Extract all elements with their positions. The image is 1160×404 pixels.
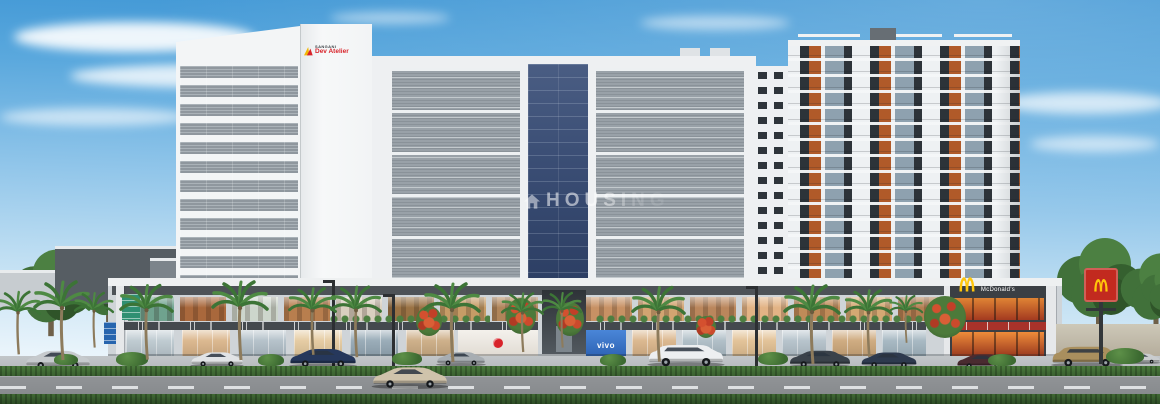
central-office-block: [372, 56, 756, 286]
palm-tree: [541, 286, 583, 349]
residential-tower: [788, 42, 1020, 288]
pylon-crossarm: [1086, 308, 1116, 311]
background-tree: [1134, 262, 1160, 320]
rooftop-unit: [680, 48, 700, 56]
logo-mark-icon: [304, 45, 313, 58]
house-icon: [524, 194, 540, 209]
tower-shading: [996, 42, 1020, 288]
driving-sedan: [368, 364, 452, 389]
palm-tree: [422, 274, 482, 364]
office-tower-louver-face: [176, 26, 300, 286]
pylon-pole: [1099, 302, 1103, 364]
street-light-pole: [755, 286, 758, 366]
rooftop-pergola: [954, 34, 1012, 37]
glass-curtain-wall: [528, 64, 588, 286]
cloud: [1030, 136, 1160, 152]
palm-tree: [843, 282, 894, 359]
lane-markings: [0, 386, 1160, 389]
rooftop-unit: [710, 48, 730, 56]
rooftop-core: [870, 28, 896, 40]
cloud: [0, 108, 190, 126]
window-strip: [774, 72, 783, 278]
louver-bay-left: [392, 68, 520, 280]
window-strip: [758, 72, 767, 278]
golden-arches-icon: [1093, 278, 1109, 292]
rooftop-pergola: [798, 34, 860, 37]
street-light-head: [383, 294, 394, 297]
office-tower-front-face: [300, 24, 372, 286]
architectural-rendering: SANGANI Dev Atelier HOUSING: [0, 0, 1160, 404]
mcdonalds-pylon-sign: [1084, 268, 1118, 364]
louver-bay-right: [596, 68, 744, 280]
parapet: [788, 40, 1020, 46]
palm-tree: [630, 278, 687, 364]
cloud: [330, 12, 450, 24]
residential-wing: [752, 66, 790, 282]
watermark: HOUSING: [524, 190, 670, 212]
foreground-hedge: [0, 394, 1160, 404]
watermark-text: HOUSING: [546, 190, 670, 212]
shrub: [988, 354, 1016, 366]
cloud: [640, 16, 790, 30]
mcdonalds-sign-text: McDonald's: [950, 287, 1046, 293]
palm-tree: [329, 278, 383, 359]
pylon-sign-board: [1084, 268, 1118, 302]
logo-brand-name: Dev Atelier: [315, 49, 349, 56]
shrub: [600, 354, 626, 366]
palm-tree: [888, 290, 924, 344]
louver-bands: [180, 66, 298, 280]
bougainvillea-shrub: [696, 316, 716, 338]
palm-tree: [118, 276, 175, 362]
palm-tree: [782, 276, 842, 366]
palm-tree: [500, 286, 545, 354]
cloud: [1000, 92, 1160, 114]
street-light-head: [746, 286, 757, 289]
palm-tree: [73, 286, 115, 349]
developer-logo: SANGANI Dev Atelier: [304, 45, 356, 63]
palm-tree: [0, 284, 42, 356]
bougainvillea-shrub: [924, 296, 966, 338]
palm-tree: [210, 272, 270, 362]
vivo-sign-text: vivo: [597, 341, 615, 350]
